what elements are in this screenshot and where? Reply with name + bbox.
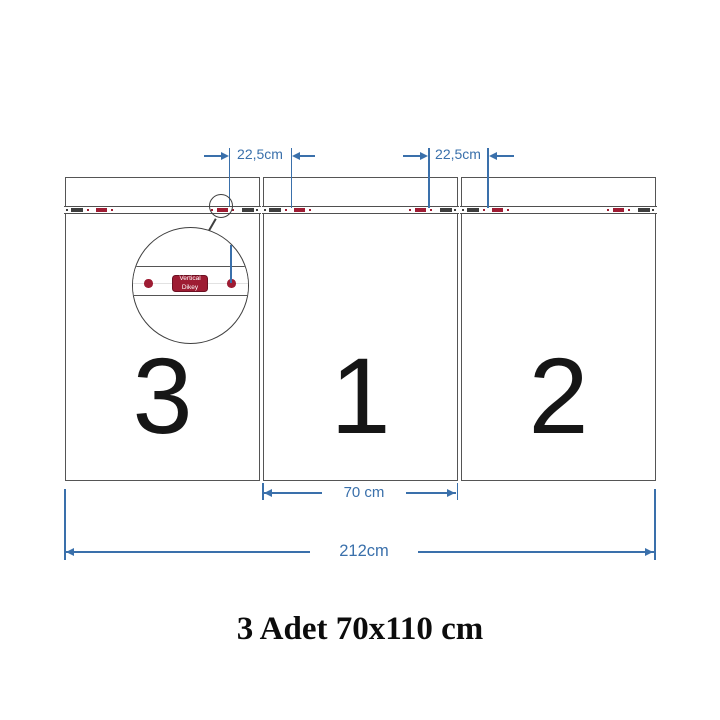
rail-mark [454,209,456,211]
dimension-label: 212cm [310,542,418,560]
rail-mark [613,208,623,212]
rail-mark [492,208,502,212]
rail-mark [430,209,432,211]
rail-mark [483,209,485,211]
rail-mark [256,209,258,211]
rail-mark [462,209,464,211]
dimension-label: 22,5cm [428,147,488,162]
panel-number: 3 [66,342,259,450]
rail-mark [285,209,287,211]
rail-mark [294,208,304,212]
arrowhead-right-icon [221,152,229,160]
magnifier-detail-circle: Vertical Dikey [132,227,249,344]
vertical-hanger-label: Vertical Dikey [172,275,208,292]
arrowhead-left-icon [292,152,300,160]
arrowhead-right-icon [645,548,653,556]
rail-mark [111,209,113,211]
magnifier-source-circle-icon [209,194,233,218]
dimension-label: 22,5cm [229,147,291,162]
rail-mark [309,209,311,211]
hanging-rail [460,206,657,214]
rail-mark [409,209,411,211]
arrowhead-left-icon [489,152,497,160]
rail-mark [71,208,82,212]
arrow-line [403,155,421,157]
arrow-line [496,155,514,157]
rail-mark [467,208,478,212]
vertical-hanger-label-line1: Vertical [179,275,200,283]
arrowhead-left-icon [264,489,272,497]
dimension-pointer-line [230,245,232,283]
rail-mark [232,209,234,211]
rail-mark [607,209,609,211]
extension-line [654,489,656,560]
arrow-line [204,155,222,157]
rail-mark [269,208,280,212]
extension-tick [457,483,459,500]
caption-title: 3 Adet 70x110 cm [0,611,720,648]
product-dimension-diagram: 3 1 2 22,5cm 22,5cm 70 cm [0,0,720,720]
arrowhead-right-icon [447,489,455,497]
rail-mark [628,209,630,211]
rail-mark [96,208,106,212]
rail-mark [66,209,68,211]
rail-mark [87,209,89,211]
rail-mark [440,208,451,212]
hanging-hook-dot-icon [144,279,153,288]
arrowhead-left-icon [66,548,74,556]
rail-mark [242,208,253,212]
rail-mark [264,209,266,211]
panel-number: 2 [462,342,655,450]
panel-2: 2 [461,177,656,481]
rail-mark [507,209,509,211]
arrowhead-right-icon [420,152,428,160]
panel-1: 1 [263,177,458,481]
dimension-label: 70 cm [322,485,406,502]
vertical-hanger-label-line2: Dikey [182,284,198,292]
rail-mark [415,208,425,212]
rail-mark [638,208,649,212]
panel-number: 1 [264,342,457,450]
rail-mark [652,209,654,211]
